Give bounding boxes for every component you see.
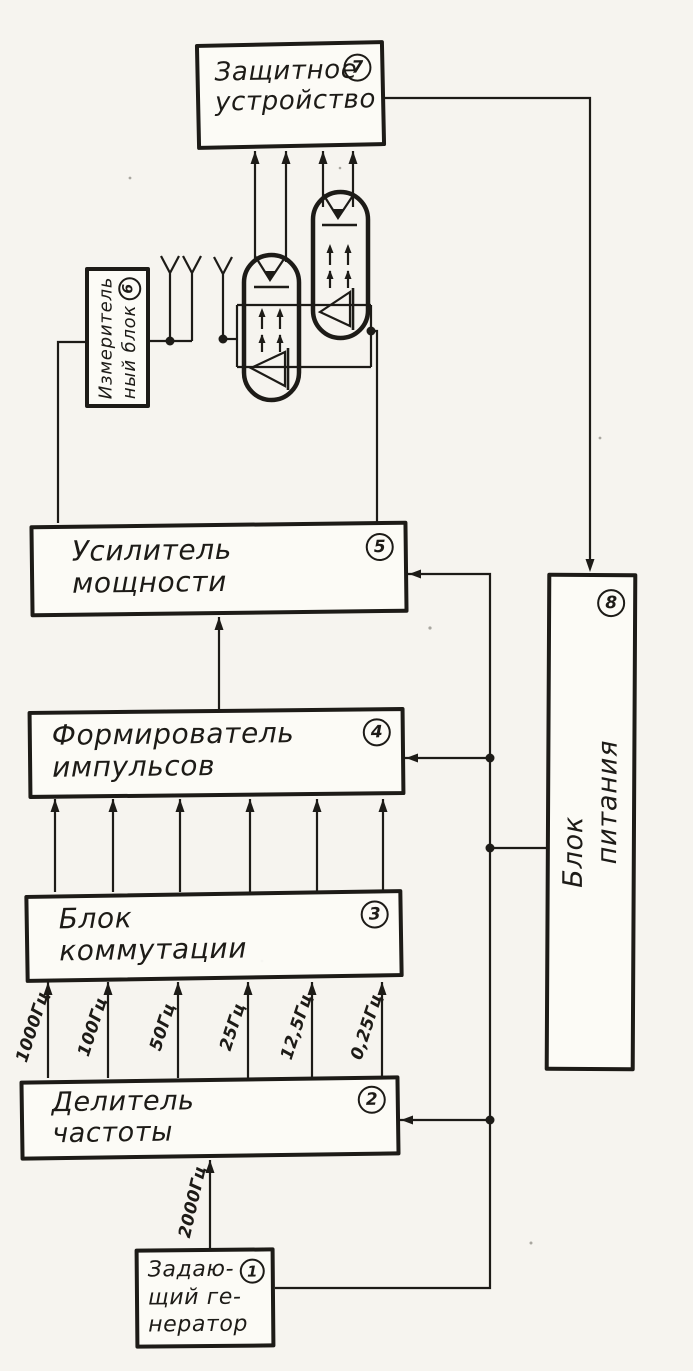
- tube-diode-triangle: [251, 352, 285, 386]
- measuring-label-line2: ный блок: [118, 304, 139, 398]
- arrow-left-icon: [409, 570, 421, 579]
- master-oscillator-label-line3: нератор: [148, 1310, 271, 1339]
- arrow-up-icon: [251, 151, 260, 164]
- test-terminals: [150, 256, 237, 346]
- tube-diode-triangle: [320, 292, 350, 326]
- terminal-y-icon: [161, 256, 179, 341]
- arrow-up-icon: [259, 308, 266, 317]
- block-power-amplifier: Усилитель мощности 5: [29, 521, 408, 618]
- wires-tubes-to-protective-device: [251, 151, 358, 262]
- frequency-divider-label-line2: частоты: [52, 1114, 396, 1150]
- switching-label-line1: Блок: [58, 898, 398, 936]
- power-supply-label-line1: Блок: [557, 800, 591, 905]
- gas-discharge-tube-left: [244, 255, 299, 400]
- measuring-label: Измеритель ный блок6: [95, 276, 141, 399]
- wires-switching-to-shaper: [51, 799, 388, 892]
- measuring-label-line1: Измеритель: [95, 276, 116, 399]
- pulse-shaper-label-line2: импульсов: [52, 749, 401, 785]
- block-measuring: Измеритель ный блок6: [85, 267, 150, 408]
- wire-shaper-to-amplifier: [215, 617, 224, 709]
- arrow-up-icon: [277, 308, 284, 317]
- arrow-up-icon: [259, 334, 266, 343]
- arrow-left-icon: [401, 1116, 413, 1125]
- block-switching: Блок коммутации 3: [24, 889, 403, 983]
- junction-dot: [486, 754, 495, 763]
- arrow-up-icon: [313, 799, 322, 812]
- switching-label-line2: коммутации: [59, 931, 399, 969]
- power-amplifier-number-badge: 5: [366, 533, 394, 561]
- tube-grid-dashes: [330, 248, 348, 288]
- arrow-up-icon: [277, 334, 284, 343]
- block-frequency-divider: Делитель частоты 2: [19, 1075, 400, 1160]
- tube-parallel-loop: [237, 305, 377, 523]
- power-supply-label: Блок питания: [557, 740, 625, 905]
- arrow-up-icon: [345, 244, 352, 253]
- arrow-left-icon: [406, 754, 418, 763]
- gas-discharge-tube-right: [313, 192, 368, 338]
- wire-measuring-to-amplifier: [58, 342, 85, 523]
- scanned-block-diagram: Защитное устройство 7 Измеритель ный бло…: [0, 0, 693, 1371]
- arrow-up-icon: [327, 244, 334, 253]
- master-oscillator-label-line2: щий ге-: [148, 1283, 271, 1312]
- power-amplifier-label-line1: Усилитель: [72, 532, 404, 569]
- terminal-y-icon: [183, 256, 201, 341]
- pulse-shaper-label-line1: Формирователь: [52, 716, 401, 752]
- arrow-up-icon: [109, 799, 118, 812]
- block-power-supply: Блок питания 8: [545, 573, 638, 1071]
- junction-dot: [486, 844, 495, 853]
- arrow-down-icon: [586, 559, 595, 572]
- junction-dot: [486, 1116, 495, 1125]
- arrow-up-icon: [282, 151, 291, 164]
- tube-grid-dashes: [262, 312, 280, 352]
- arrow-up-icon: [215, 617, 224, 630]
- block-master-oscillator: Задаю- щий ге- нератор 1: [135, 1247, 276, 1348]
- block-pulse-shaper: Формирователь импульсов 4: [28, 707, 406, 799]
- terminal-y-icon: [214, 257, 232, 339]
- wire-protective-to-power-supply: [385, 98, 595, 572]
- arrow-up-icon: [246, 799, 255, 812]
- pulse-shaper-number-badge: 4: [363, 718, 391, 746]
- power-supply-label-line2: питания: [591, 740, 625, 865]
- power-amplifier-label-line2: мощности: [72, 564, 404, 601]
- arrow-up-icon: [327, 270, 334, 279]
- arrow-up-icon: [379, 799, 388, 812]
- power-supply-number-badge: 8: [597, 589, 625, 617]
- arrow-up-icon: [345, 270, 352, 279]
- measuring-number-badge: 6: [117, 276, 140, 299]
- arrow-up-icon: [349, 151, 358, 164]
- master-oscillator-number-badge: 1: [240, 1258, 265, 1283]
- protective-device-label-line2: устройство: [215, 84, 382, 118]
- block-protective-device: Защитное устройство 7: [195, 40, 386, 150]
- frequency-divider-label-line1: Делитель: [52, 1082, 396, 1118]
- arrow-up-icon: [51, 799, 60, 812]
- junction-dot: [166, 337, 175, 346]
- junction-dot: [219, 335, 228, 344]
- arrow-up-icon: [319, 151, 328, 164]
- arrow-up-icon: [176, 799, 185, 812]
